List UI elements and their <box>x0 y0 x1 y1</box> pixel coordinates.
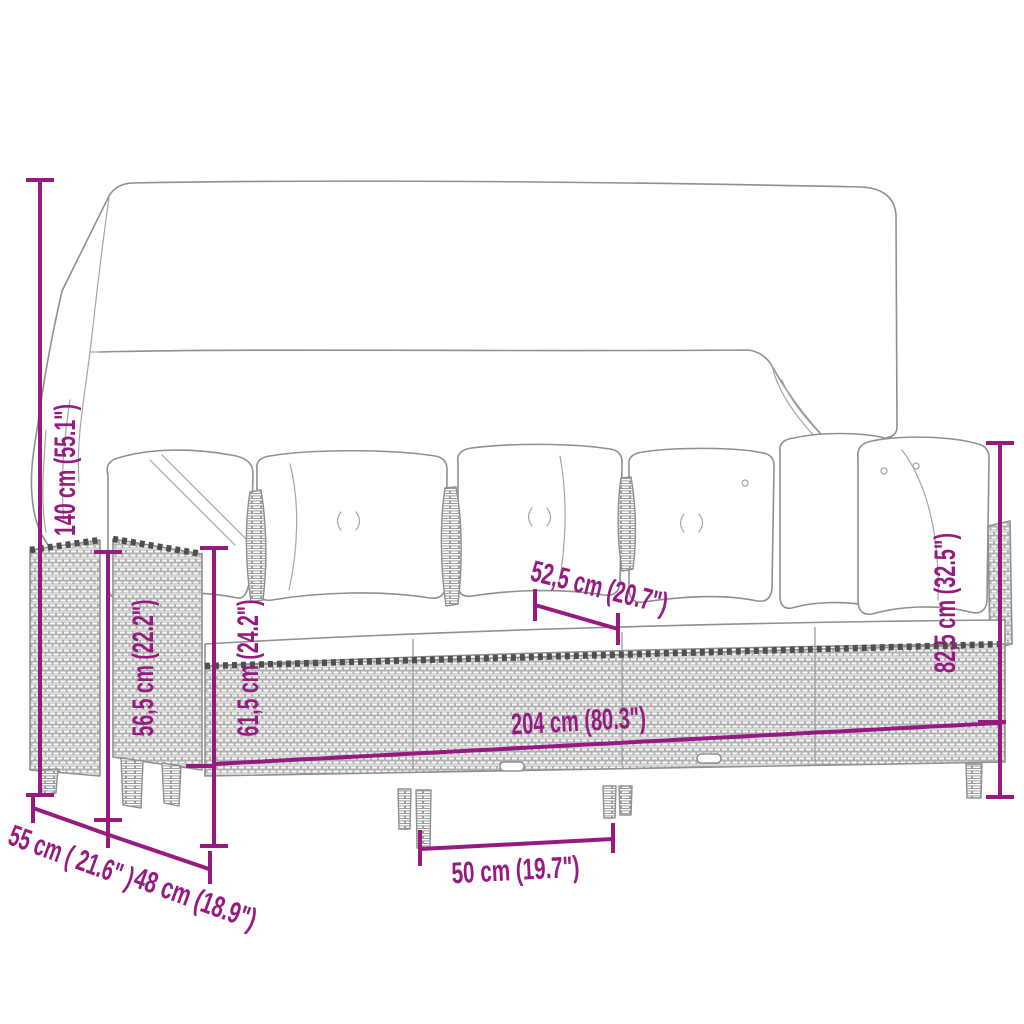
product-dimension-diagram: 140 cm (55.1") 56,5 cm (22.2") 61,5 cm (… <box>0 0 1024 1024</box>
leg <box>40 769 58 794</box>
dim-label: 61,5 cm (24.2") <box>232 600 265 737</box>
back-post-middle <box>441 487 461 606</box>
back-pillow-4 <box>629 448 774 602</box>
dim-label: 50 cm (19.7") <box>451 851 581 891</box>
leg <box>162 763 181 806</box>
dim-label: 140 cm (55.1") <box>49 404 82 536</box>
base-tab-left <box>500 762 524 771</box>
back-post-right <box>618 477 635 571</box>
dim-label: 82,5 cm (32.5") <box>929 533 962 673</box>
back-pillow-2 <box>257 451 447 601</box>
back-post-left <box>246 490 266 602</box>
base-tab-right <box>697 754 721 763</box>
dim-label: 204 cm (80.3") <box>510 702 647 742</box>
leg <box>966 764 982 798</box>
leg <box>398 789 411 829</box>
leg <box>619 786 632 815</box>
dim-label: 56,5 cm (22.2") <box>127 600 160 737</box>
back-pillow-6 <box>858 437 989 614</box>
leg <box>603 786 616 818</box>
leg <box>121 758 143 808</box>
diagram-canvas: 140 cm (55.1") 56,5 cm (22.2") 61,5 cm (… <box>0 0 1024 1024</box>
